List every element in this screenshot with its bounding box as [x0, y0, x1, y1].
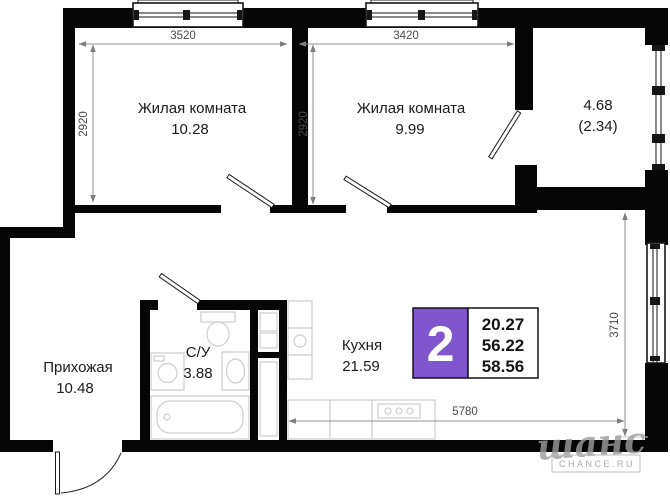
window-living1 [133, 0, 243, 27]
room-area-living2: 9.99 [395, 121, 424, 138]
watermark: шанс CHANCE.RU [535, 419, 647, 472]
badge-apartment-area: 56.22 [482, 336, 525, 355]
badge-total-area: 58.56 [482, 357, 525, 376]
dim-room2-depth-label: 2920 [298, 111, 310, 137]
dim-kitchen-depth-label: 3710 [609, 312, 621, 338]
room-area-balcony: 4.68 [583, 97, 612, 114]
floor-plan-drawing: 3520 3420 2920 2920 3710 5780 Жилая комн… [0, 0, 670, 502]
window-living2 [366, 0, 478, 27]
dim-room1-width-label: 3520 [170, 30, 196, 42]
badge-living-area: 20.27 [482, 315, 525, 334]
watermark-caption: CHANCE.RU [559, 459, 635, 469]
room-label-kitchen: Кухня [342, 337, 382, 354]
room-label-hallway: Прихожая [43, 359, 113, 376]
area-badge: 2 20.27 56.22 58.56 [413, 308, 538, 378]
room-area-hallway: 10.48 [56, 380, 94, 397]
badge-rooms-count: 2 [427, 316, 455, 372]
room-label-living2: Жилая комната [357, 100, 466, 117]
window-kitchen [647, 243, 665, 363]
dim-kitchen-width-label: 5780 [452, 406, 478, 418]
room-area-bathroom: 3.88 [183, 365, 212, 382]
dim-room1-depth-label: 2920 [78, 111, 90, 137]
room-area-living1: 10.28 [171, 121, 209, 138]
floor-plan-page: 3520 3420 2920 2920 3710 5780 Жилая комн… [0, 0, 670, 502]
dim-room2-width-label: 3420 [393, 30, 419, 42]
room-label-living1: Жилая комната [138, 100, 247, 117]
room-area-kitchen: 21.59 [342, 358, 380, 375]
room-label-bathroom: С/У [186, 344, 211, 361]
room-area-balcony-reduced: (2.34) [578, 118, 617, 135]
